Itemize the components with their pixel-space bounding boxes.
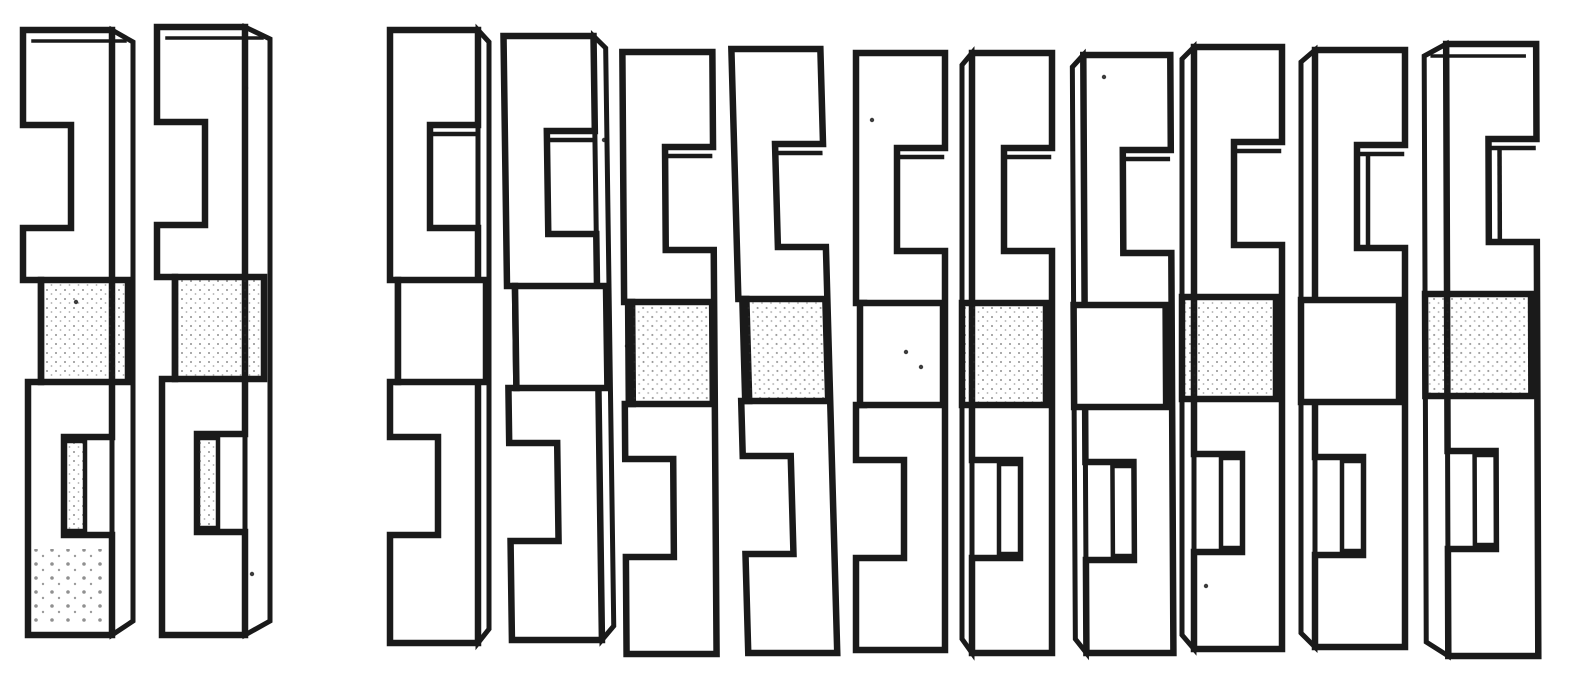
piece-5-mid-block: [628, 302, 713, 404]
piece-12-mid-block: [1425, 294, 1531, 396]
piece-1: [23, 30, 133, 635]
piece-3-mid-block: [398, 280, 486, 382]
piece-2-mid-block: [175, 277, 264, 379]
figure-canvas: [0, 0, 1588, 676]
figure-interlocking-blocks: [0, 0, 1588, 676]
piece-10-mid-block: [1182, 297, 1276, 399]
piece-7: [856, 53, 945, 650]
piece-11: [1301, 50, 1405, 647]
piece-7-mid-block: [860, 303, 943, 405]
piece-3: [390, 30, 489, 643]
piece-2: [157, 27, 270, 635]
piece-11-mid-block: [1301, 300, 1399, 402]
piece-4-mid-block: [515, 286, 607, 388]
piece-10: [1182, 47, 1282, 649]
piece-9: [1072, 55, 1173, 653]
piece-1-mid-block: [41, 280, 128, 382]
piece-5: [622, 52, 716, 654]
pieces-layer: [23, 27, 1538, 656]
piece-8-mid-block: [962, 303, 1046, 405]
piece-6: [731, 49, 837, 653]
piece-9-mid-block: [1074, 305, 1167, 407]
piece-12: [1424, 44, 1538, 656]
piece-6-mid-block: [742, 299, 828, 401]
piece-4: [504, 36, 614, 640]
piece-8: [962, 53, 1052, 653]
